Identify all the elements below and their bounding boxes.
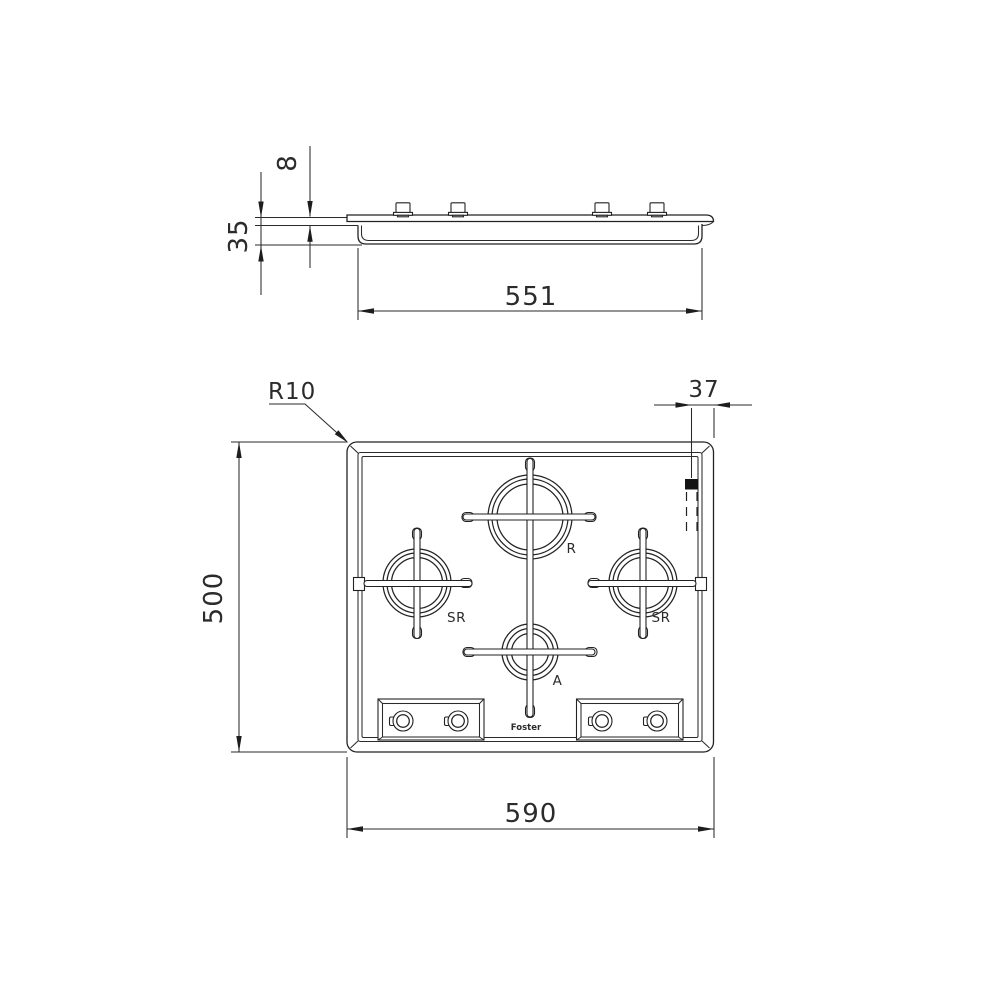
burner-label-semi-rapid-right: SR — [652, 610, 671, 626]
dimension-590: 590 — [347, 757, 714, 838]
dimension-551: 551 — [358, 248, 702, 320]
side-knob-1 — [394, 203, 413, 217]
dim-500-label: 500 — [199, 572, 229, 625]
dimension-500: 500 — [199, 442, 347, 752]
control-panel-left — [378, 699, 484, 740]
dim-35-label: 35 — [224, 218, 254, 253]
burner-label-auxiliary: A — [553, 673, 563, 689]
recessed-tub-inner-line — [362, 226, 699, 241]
grate-bar-rapid-horizontal — [463, 514, 595, 520]
dimension-r10: R10 — [268, 379, 350, 445]
control-panel-right — [577, 699, 684, 740]
grate-bar-auxiliary-horizontal — [464, 649, 595, 655]
grate-bar-sr-right-horizontal — [588, 581, 696, 587]
dimension-8: 8 — [273, 146, 313, 268]
dim-37-label: 37 — [688, 377, 719, 403]
grate-bar-sr-left-horizontal — [364, 581, 472, 587]
control-knob-2 — [448, 711, 468, 731]
control-knob-4 — [647, 711, 667, 731]
control-knob-1 — [393, 711, 413, 731]
grate-edge-tab-left — [354, 578, 365, 591]
side-knob-3 — [593, 203, 612, 217]
dim-r10-label: R10 — [268, 379, 316, 405]
dimension-35: 35 — [224, 172, 264, 295]
dim-590-label: 590 — [505, 799, 558, 829]
dim-551-label: 551 — [505, 282, 558, 312]
plan-view: R SR SR A — [199, 377, 752, 838]
side-knob-4 — [648, 203, 667, 217]
technical-drawing-page: 8 35 551 — [0, 0, 1000, 1000]
burner-label-semi-rapid-left: SR — [447, 610, 466, 626]
control-knob-3 — [592, 711, 612, 731]
grate-bar-vertical-center — [527, 459, 533, 718]
side-knob-2 — [449, 203, 468, 217]
brand-logo-text: Foster — [511, 723, 542, 733]
side-view: 8 35 551 — [224, 146, 714, 320]
grate-edge-tab-right — [696, 578, 707, 591]
connection-marker-solid — [686, 480, 698, 490]
burner-label-rapid: R — [567, 541, 577, 557]
dim-8-label: 8 — [273, 154, 303, 172]
technical-drawing: 8 35 551 — [0, 0, 1000, 1000]
